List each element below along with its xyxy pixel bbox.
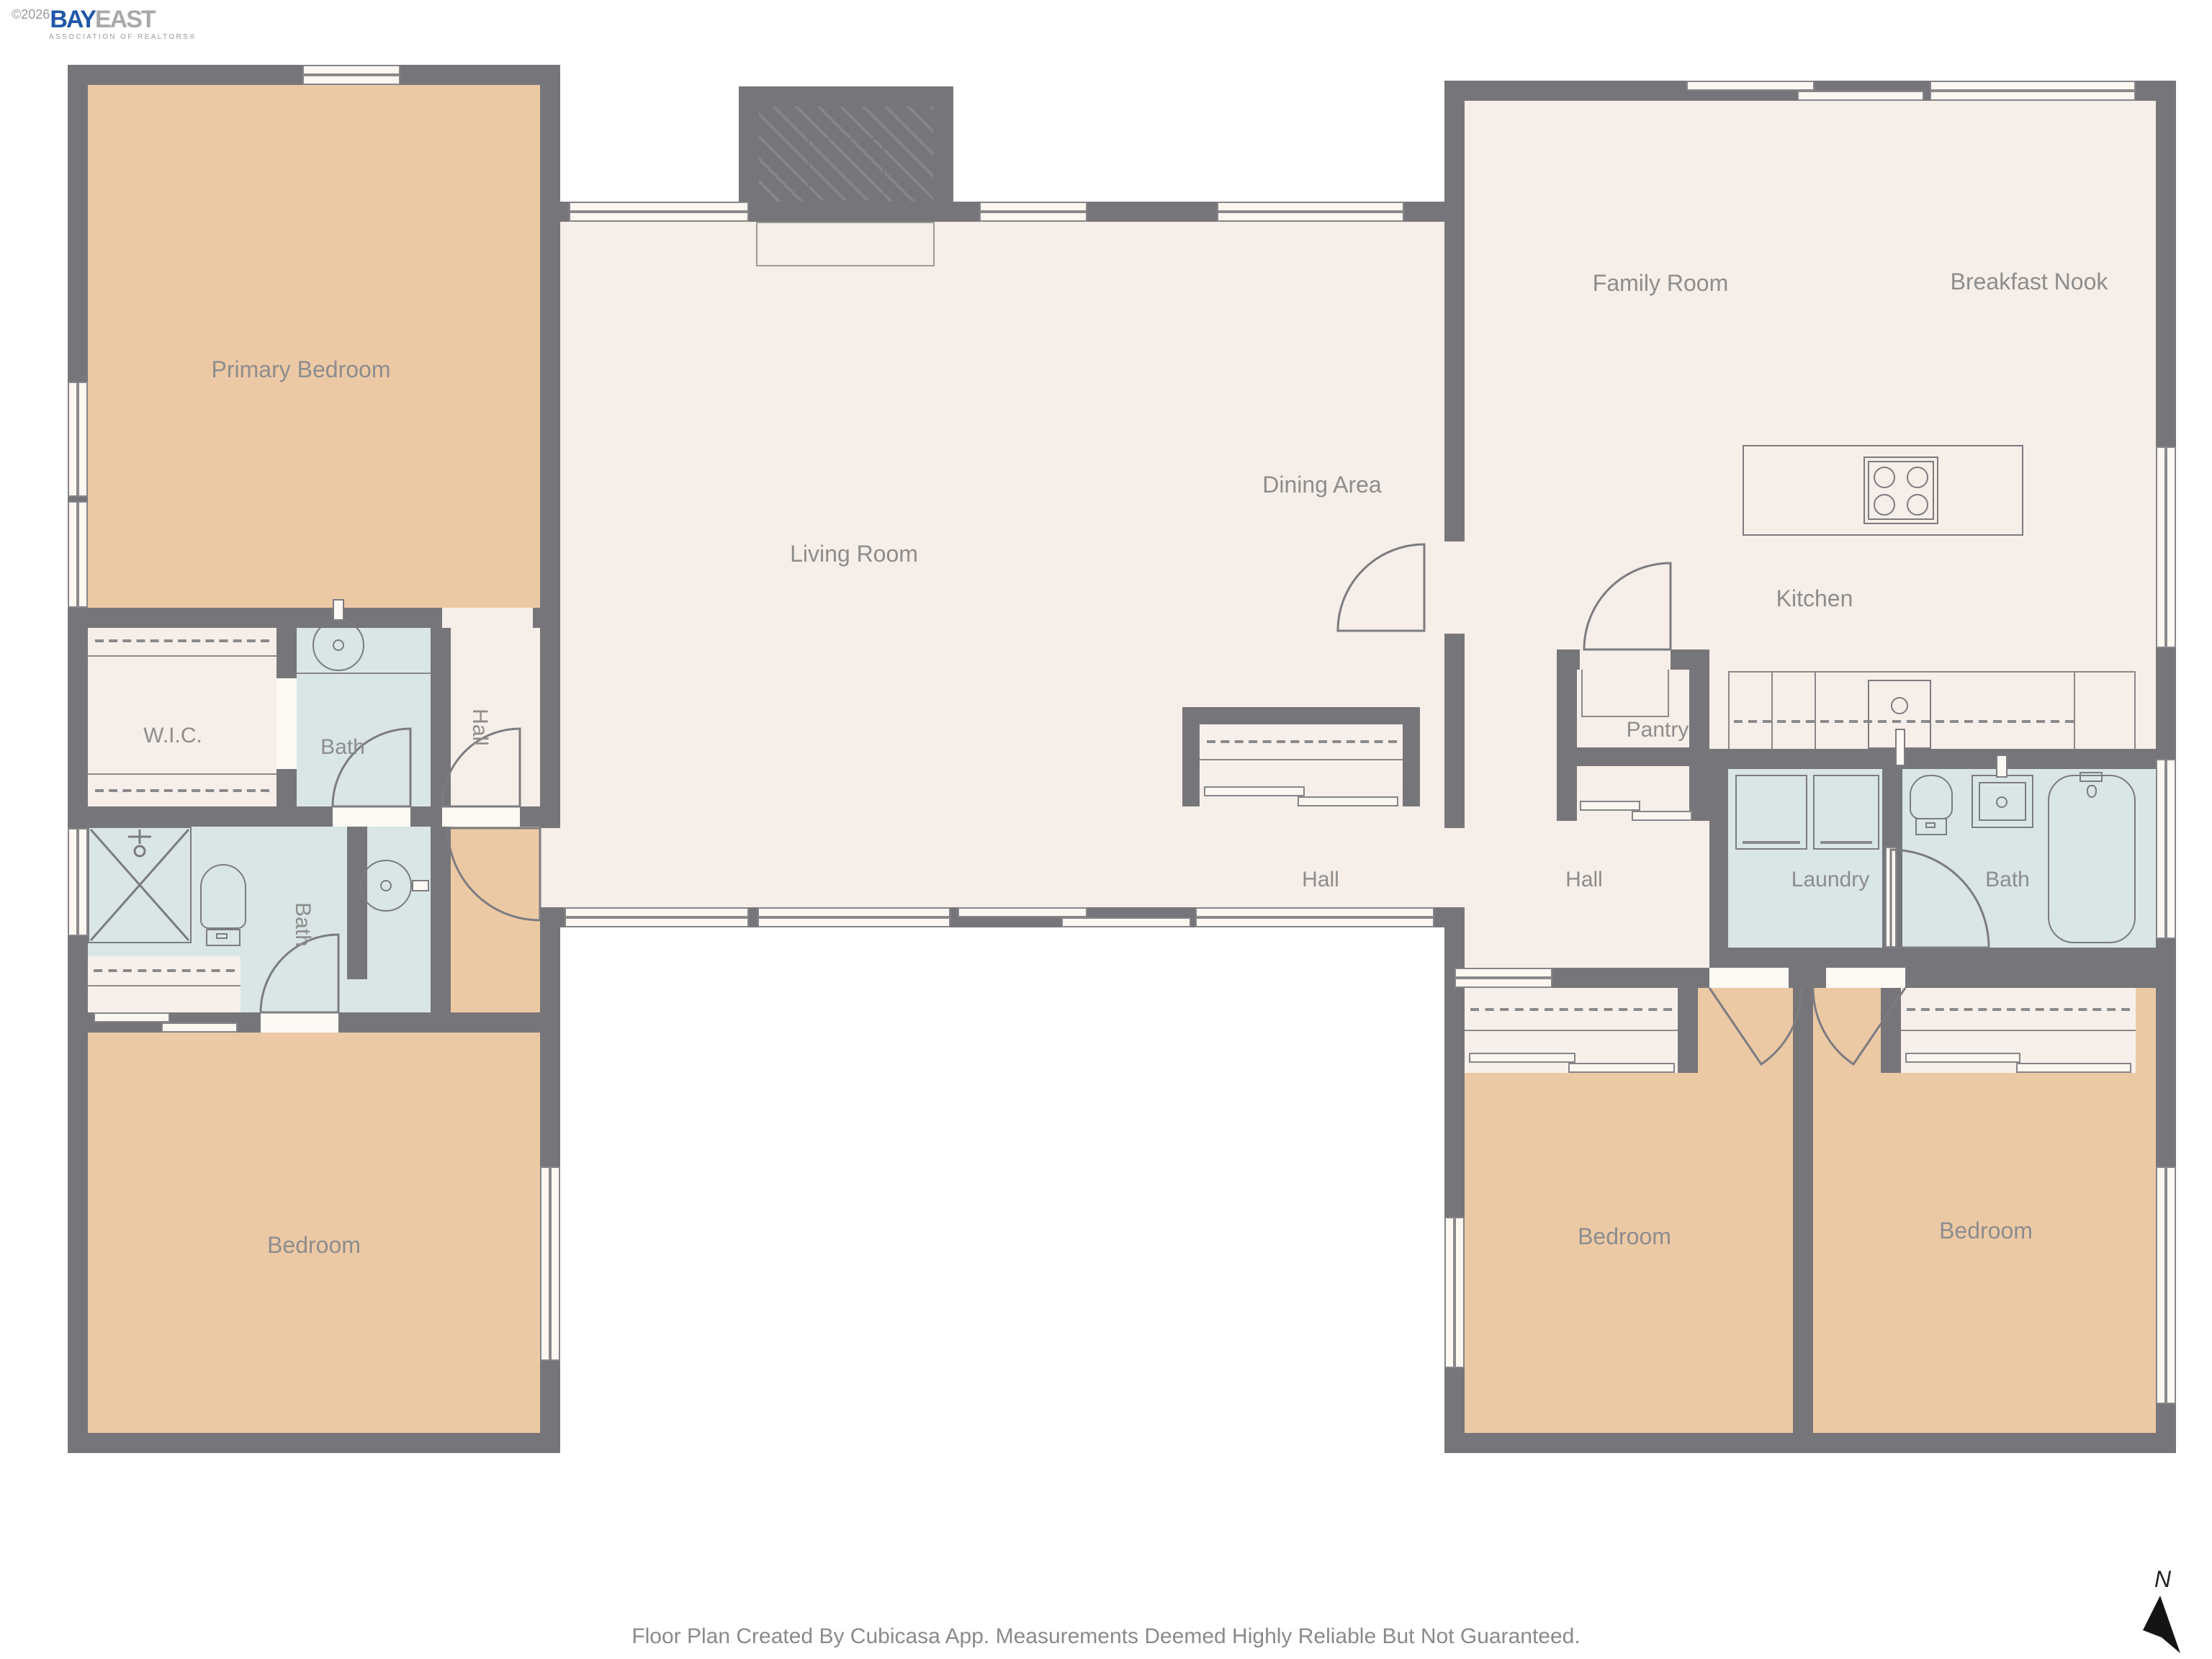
room-label-hall-center: Hall xyxy=(1302,868,1339,892)
room-label-hall-right: Hall xyxy=(1565,868,1603,892)
door-arc xyxy=(1813,988,1905,1064)
logo-bay: BAY xyxy=(50,6,95,33)
door-arc xyxy=(1891,850,1989,948)
door-arc xyxy=(1584,563,1671,649)
room-label-breakfast-nook: Breakfast Nook xyxy=(1951,271,2108,297)
room-label-living-room: Living Room xyxy=(790,543,918,569)
shower-head-drop xyxy=(135,846,145,856)
door-arc xyxy=(1338,544,1424,631)
north-label: N xyxy=(2154,1566,2172,1592)
symbol-overlay: N xyxy=(0,0,2212,1659)
shower-head xyxy=(128,829,151,844)
room-label-family-room: Family Room xyxy=(1593,272,1728,298)
room-label-bath-right: Bath xyxy=(1985,868,2030,892)
room-label-pantry: Pantry xyxy=(1627,718,1689,742)
room-label-bath-lower-left: Bath xyxy=(290,902,315,947)
logo-copyright: ©2026 xyxy=(12,7,50,22)
room-label-bedroom-left: Bedroom xyxy=(267,1234,361,1260)
logo-east: EAST xyxy=(95,6,155,33)
room-label-laundry: Laundry xyxy=(1791,868,1869,892)
room-label-bath-top-left: Bath xyxy=(320,735,365,760)
floor-plan: N Primary Bedroom W.I.C. Bath Hall Bath … xyxy=(0,0,2212,1659)
room-label-hall-left: Hall xyxy=(467,709,492,746)
door-arc xyxy=(1709,988,1802,1064)
room-label-wic: W.I.C. xyxy=(143,724,202,748)
room-label-bedroom-right: Bedroom xyxy=(1939,1220,2033,1246)
room-label-primary-bedroom: Primary Bedroom xyxy=(212,359,391,385)
logo-subtitle: ASSOCIATION OF REALTORS® xyxy=(49,35,197,42)
room-label-kitchen: Kitchen xyxy=(1776,588,1853,613)
bayeast-logo: ©2026BAYEAST ASSOCIATION OF REALTORS® xyxy=(12,7,197,42)
door-arc xyxy=(448,828,540,920)
footer-disclaimer: Floor Plan Created By Cubicasa App. Meas… xyxy=(0,1624,2212,1649)
room-label-dining-area: Dining Area xyxy=(1262,474,1381,500)
room-label-bedroom-middle: Bedroom xyxy=(1578,1226,1671,1251)
